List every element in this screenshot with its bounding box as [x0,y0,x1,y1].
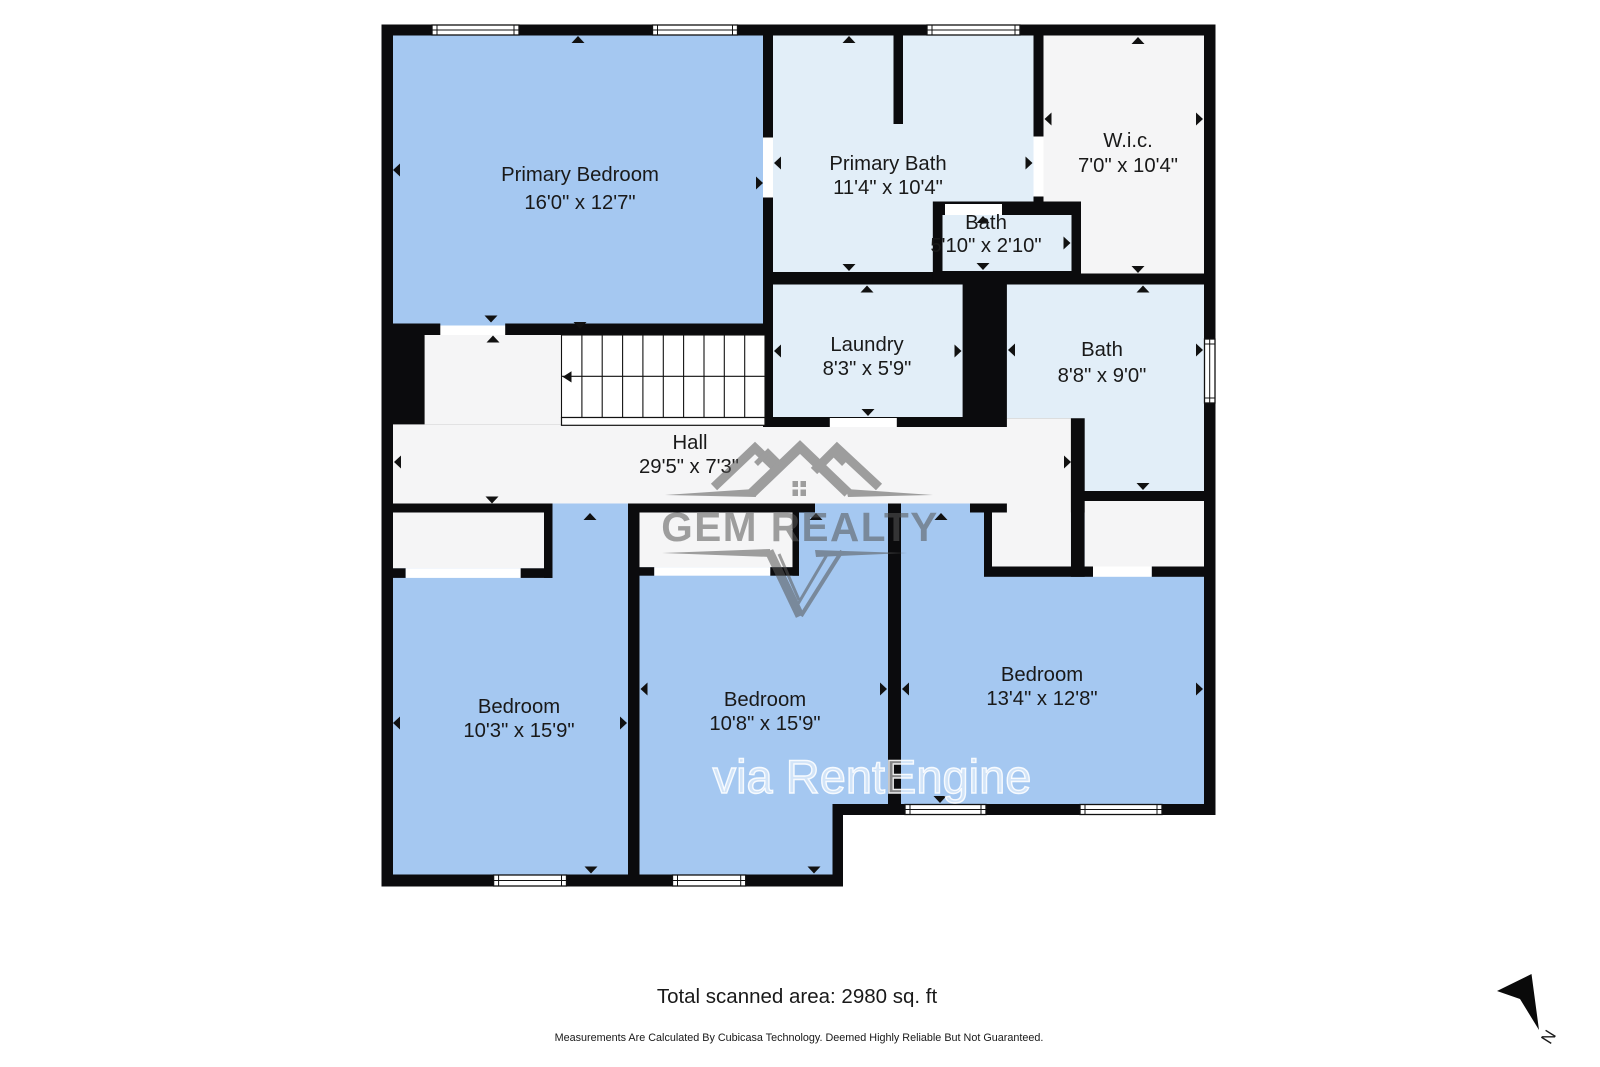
svg-text:Primary Bedroom: Primary Bedroom [501,164,659,186]
svg-text:Total scanned area: 2980 sq. f: Total scanned area: 2980 sq. ft [657,985,938,1008]
svg-text:10'8" x 15'9": 10'8" x 15'9" [709,713,820,735]
svg-text:W.i.c.: W.i.c. [1103,130,1153,152]
svg-text:Measurements Are Calculated By: Measurements Are Calculated By Cubicasa … [555,1032,1044,1044]
svg-text:Bedroom: Bedroom [724,689,806,711]
svg-text:Bedroom: Bedroom [478,696,560,718]
svg-text:13'4" x 12'8": 13'4" x 12'8" [986,688,1097,710]
svg-text:8'3" x 5'9": 8'3" x 5'9" [823,358,912,380]
svg-text:8'8" x 9'0": 8'8" x 9'0" [1058,365,1147,387]
svg-text:Laundry: Laundry [830,334,904,356]
svg-text:Bedroom: Bedroom [1001,664,1083,686]
svg-text:Bath: Bath [965,212,1007,234]
svg-text:10'3" x 15'9": 10'3" x 15'9" [463,720,574,742]
svg-text:Hall: Hall [673,432,708,454]
svg-text:Primary Bath: Primary Bath [829,153,946,175]
svg-text:Bath: Bath [1081,339,1123,361]
svg-text:GEM REALTY: GEM REALTY [661,504,939,550]
svg-text:via RentEngine: via RentEngine [713,750,1032,803]
svg-text:N: N [1537,1027,1560,1047]
svg-text:11'4" x 10'4": 11'4" x 10'4" [833,177,943,199]
svg-text:7'0" x 10'4": 7'0" x 10'4" [1078,155,1178,177]
svg-text:5'10" x 2'10": 5'10" x 2'10" [930,235,1041,257]
svg-text:16'0" x 12'7": 16'0" x 12'7" [524,192,635,214]
